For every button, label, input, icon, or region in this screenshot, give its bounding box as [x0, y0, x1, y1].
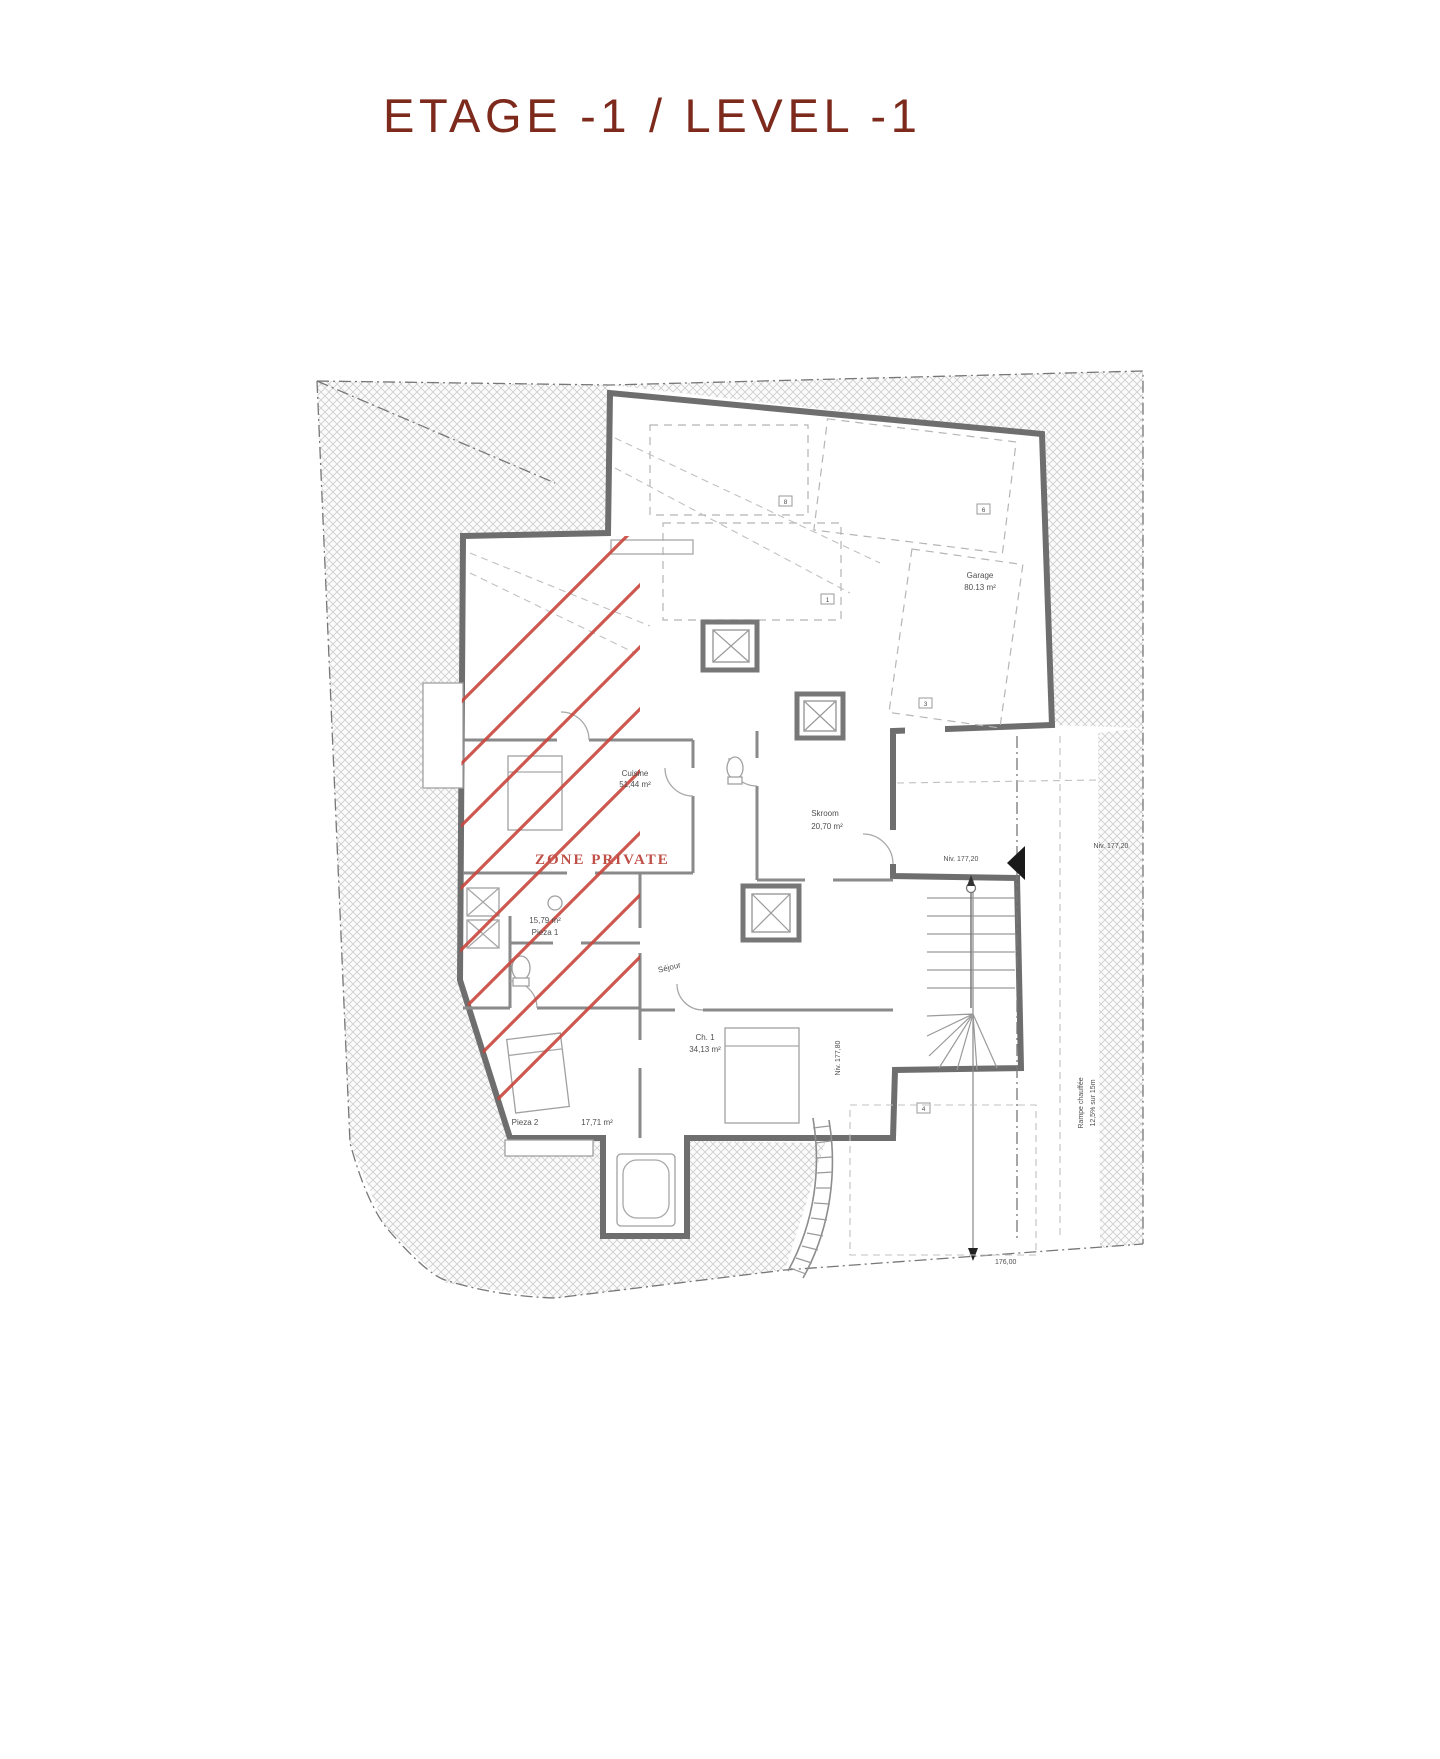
hatch-right-strip	[1098, 728, 1143, 1248]
pieza1-name: Pieza 1	[532, 928, 559, 937]
garage-opening	[905, 724, 945, 734]
bed	[725, 1028, 799, 1123]
svg-text:6: 6	[982, 507, 986, 514]
level-entry-left: Niv. 177,20	[944, 856, 979, 863]
ramp-text-1: Rampe chauffée	[1078, 1077, 1085, 1128]
terrace-step	[505, 1140, 593, 1156]
ch1-name: Ch. 1	[695, 1033, 715, 1042]
marker-6: 6	[977, 504, 990, 514]
elevator-icon	[743, 886, 799, 940]
cuisine-area: 51,44 m²	[619, 780, 651, 789]
marker-8: 8	[779, 496, 792, 506]
garage-area-value: 80.13 m²	[964, 583, 996, 592]
garage-name: Garage	[967, 571, 994, 580]
sink	[548, 896, 562, 910]
floor-plan: Garage 80.13 m² 176,00 Rampe chauffée 12…	[305, 368, 1155, 1318]
svg-text:1: 1	[826, 597, 830, 604]
toilet	[727, 757, 743, 784]
cuisine-name: Cuisine	[622, 769, 649, 778]
pieza1-area: 15,79 m²	[529, 916, 561, 925]
page-title: ETAGE -1 / LEVEL -1	[383, 88, 1083, 143]
ramp-bottom-level: 176,00	[995, 1259, 1017, 1266]
floor-plan-drawing: Garage 80.13 m² 176,00 Rampe chauffée 12…	[305, 368, 1155, 1318]
pieza2-name: Pieza 2	[512, 1118, 539, 1127]
bay-window	[423, 683, 463, 788]
ch1-area: 34,13 m²	[689, 1045, 721, 1054]
marker-3: 3	[919, 698, 932, 708]
bed	[507, 1033, 570, 1113]
svg-text:8: 8	[784, 499, 788, 506]
appliance	[467, 888, 499, 916]
skroom-area: 20,70 m²	[811, 822, 843, 831]
level-entry-right: Niv. 177,20	[1094, 843, 1129, 850]
svg-text:3: 3	[924, 701, 928, 708]
appliance	[467, 920, 499, 948]
marker-1: 1	[821, 594, 834, 604]
elevator-icon	[703, 622, 757, 670]
pieza2-area: 17,71 m²	[581, 1118, 613, 1127]
ramp-text-2: 12,5% sur 15m	[1090, 1079, 1097, 1126]
bathtub	[617, 1154, 675, 1226]
elevator-icon	[797, 694, 843, 738]
skroom-name: Skroom	[811, 809, 839, 818]
svg-text:4: 4	[922, 1106, 926, 1113]
level-lower: Niv. 177,80	[835, 1040, 842, 1075]
page: ETAGE -1 / LEVEL -1	[0, 0, 1440, 1759]
zone-private-label: ZONE PRIVATE	[535, 852, 670, 868]
